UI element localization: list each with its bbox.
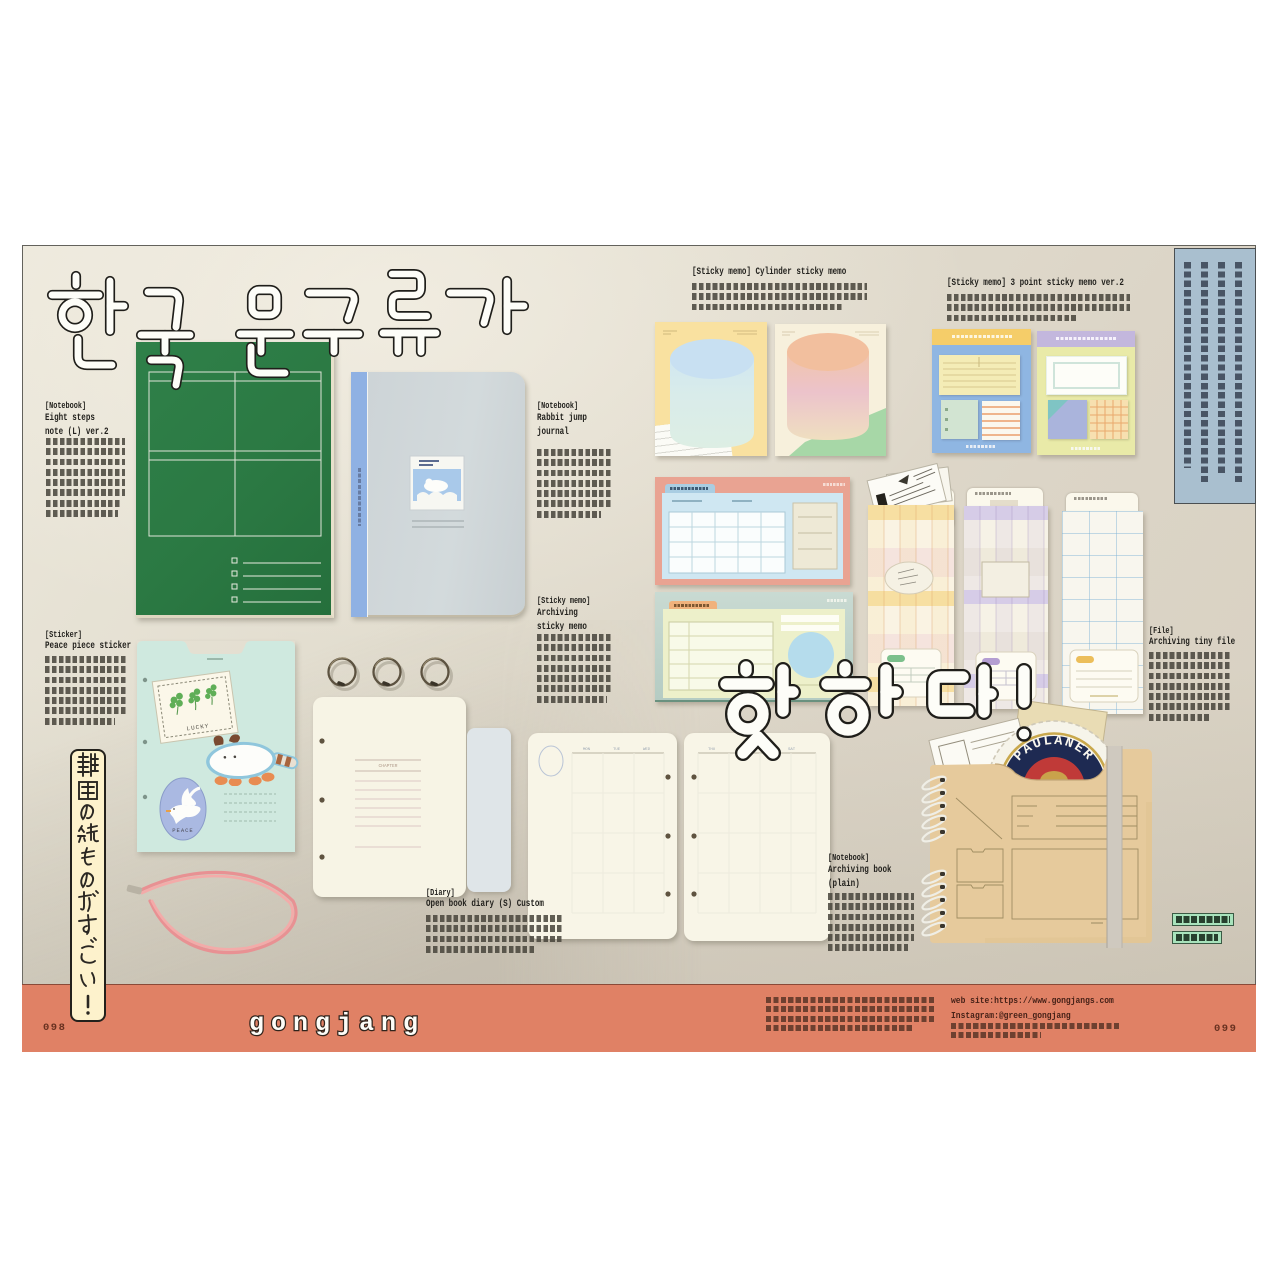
svg-text:gongjang: gongjang: [249, 1009, 425, 1038]
